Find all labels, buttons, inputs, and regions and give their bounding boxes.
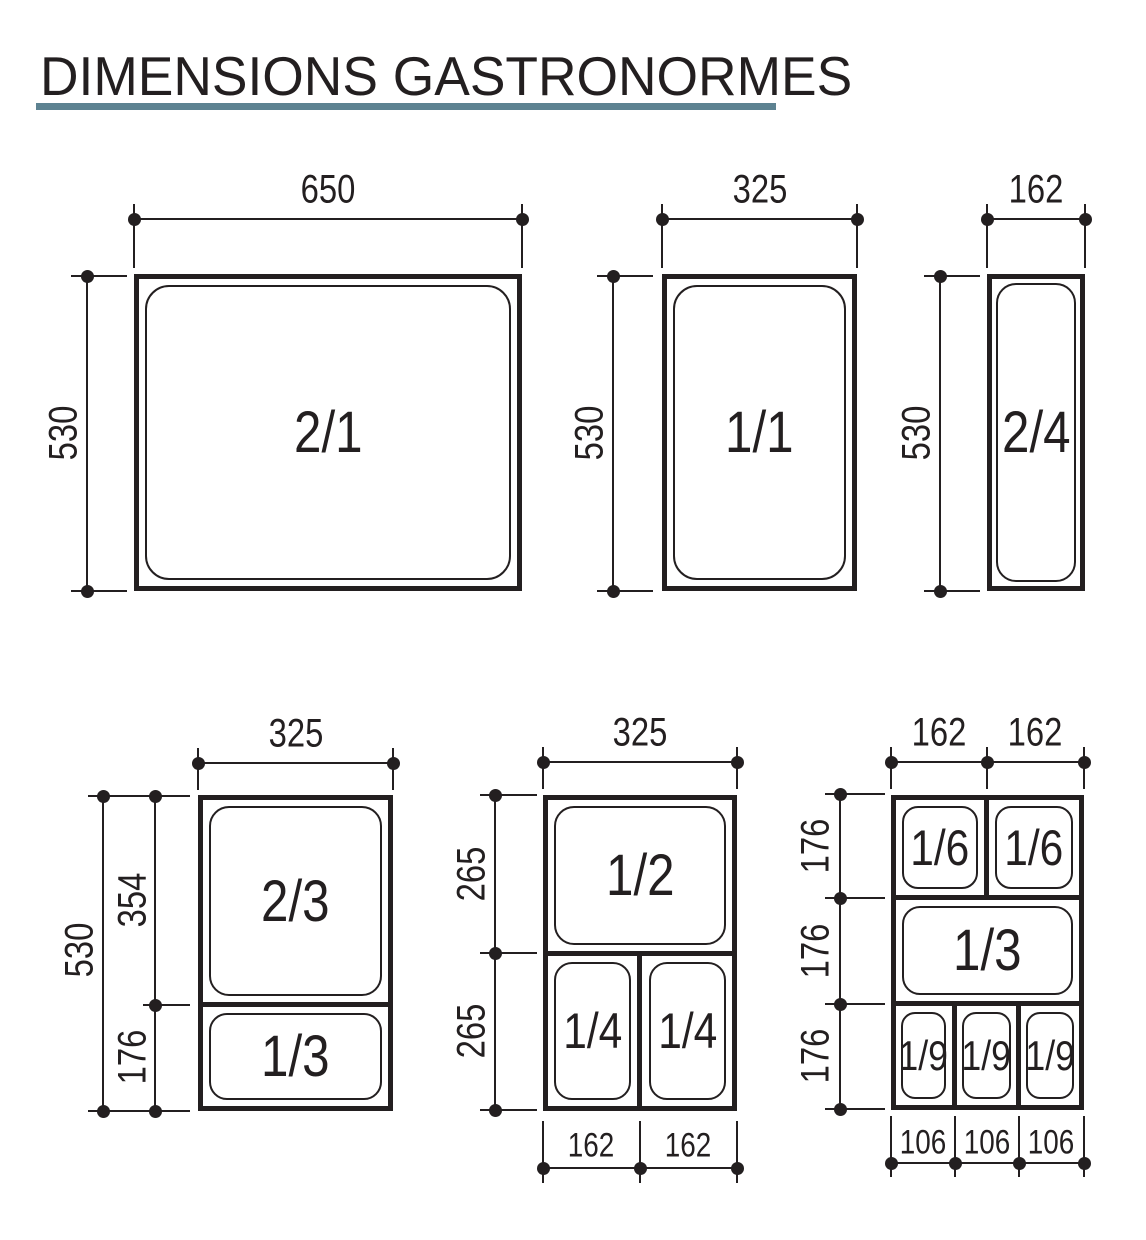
pan-label: 1/9 [899, 1032, 949, 1080]
pan-inset: 1/3 [209, 1013, 382, 1100]
dim-label: 325 [733, 168, 788, 213]
dim-label: 162 [568, 1127, 615, 1166]
dim-label: 530 [58, 923, 103, 978]
dim-label: 265 [450, 1004, 495, 1059]
dim-dot [834, 998, 847, 1011]
dim-dot [516, 213, 529, 226]
extension-line [71, 590, 127, 592]
dim-dot [934, 270, 947, 283]
dim-dot [851, 213, 864, 226]
pan-label: 1/4 [658, 1002, 717, 1060]
dim-dot [489, 947, 502, 960]
dim-line [543, 761, 737, 763]
dim-dot [537, 756, 550, 769]
dim-dot [1078, 1157, 1091, 1170]
dim-line [987, 218, 1085, 220]
pan-inset: 1/9 [1026, 1012, 1074, 1099]
dim-dot [834, 788, 847, 801]
dim-dot [934, 585, 947, 598]
dim-dot [387, 757, 400, 770]
divider-wall [984, 800, 989, 895]
pan-label: 2/4 [1002, 399, 1071, 466]
pan-inset: 1/9 [901, 1012, 946, 1099]
dim-label: 530 [895, 406, 940, 461]
dim-label: 176 [794, 819, 839, 874]
pan-inset: 2/3 [209, 806, 382, 996]
divider-wall [952, 1006, 957, 1105]
pan-label: 1/1 [725, 399, 794, 466]
divider-wall [1016, 1006, 1021, 1105]
divider-wall [203, 1002, 388, 1007]
dim-dot [1078, 756, 1091, 769]
dim-dot [634, 1162, 647, 1175]
dim-dot [537, 1162, 550, 1175]
dim-label: 650 [301, 168, 356, 213]
pan-inset: 1/3 [902, 906, 1073, 995]
dim-dot [607, 270, 620, 283]
dim-dot [981, 213, 994, 226]
pan-label: 1/6 [910, 819, 969, 877]
pan-label: 1/2 [606, 842, 675, 909]
dim-dot [97, 790, 110, 803]
dim-dot [885, 1157, 898, 1170]
pan-label: 1/9 [1025, 1032, 1075, 1080]
dim-label: 325 [269, 712, 324, 757]
dim-line [134, 218, 522, 220]
dim-label: 162 [665, 1127, 712, 1166]
dim-label: 106 [964, 1124, 1011, 1163]
pan-inset: 1/2 [554, 806, 726, 945]
dim-label: 325 [613, 711, 668, 756]
dim-dot [656, 213, 669, 226]
dim-dot [949, 1157, 962, 1170]
extension-line [71, 275, 127, 277]
dim-line [662, 218, 857, 220]
pan-inset: 1/6 [902, 806, 978, 889]
divider-wall [896, 1001, 1079, 1006]
dim-dot [834, 892, 847, 905]
pan-label: 1/9 [962, 1032, 1012, 1080]
pan-label: 2/1 [294, 399, 363, 466]
dim-dot [981, 756, 994, 769]
dim-dot [885, 756, 898, 769]
dim-dot [1079, 213, 1092, 226]
dim-dot [149, 999, 162, 1012]
extension-line [597, 275, 653, 277]
dim-label: 106 [1028, 1124, 1075, 1163]
gastronorm-dimensions-diagram: DIMENSIONS GASTRONORMES 2/1 650 530 1/1 [0, 0, 1146, 1240]
dim-dot [81, 270, 94, 283]
divider-wall [896, 895, 1079, 900]
dim-dot [128, 213, 141, 226]
pan-label: 1/3 [261, 1023, 330, 1090]
pan-inset: 1/4 [649, 962, 726, 1100]
dim-dot [834, 1103, 847, 1116]
dim-line [839, 794, 841, 1109]
dim-dot [731, 1162, 744, 1175]
dim-dot [192, 757, 205, 770]
dim-label: 530 [568, 406, 613, 461]
pan-inset: 2/4 [996, 283, 1076, 582]
dim-label: 176 [111, 1030, 156, 1085]
divider-wall [637, 956, 642, 1106]
pan-inset: 2/1 [145, 285, 511, 580]
dim-dot [731, 756, 744, 769]
dim-dot [607, 585, 620, 598]
pan-inset: 1/9 [962, 1012, 1011, 1099]
dim-label: 176 [794, 1029, 839, 1084]
dim-label: 162 [1008, 711, 1063, 756]
dim-label: 106 [900, 1124, 947, 1163]
pan-label: 1/6 [1004, 819, 1063, 877]
title-underline [36, 103, 776, 110]
pan-inset: 1/4 [554, 962, 631, 1100]
dim-dot [489, 1104, 502, 1117]
dim-label: 162 [1009, 168, 1064, 213]
dim-dot [489, 789, 502, 802]
dim-dot [149, 790, 162, 803]
pan-label: 1/4 [563, 1002, 622, 1060]
dim-label: 530 [42, 406, 87, 461]
dim-dot [149, 1105, 162, 1118]
dim-label: 354 [111, 873, 156, 928]
dim-dot [1013, 1157, 1026, 1170]
dim-label: 162 [912, 711, 967, 756]
extension-line [597, 590, 653, 592]
dim-label: 176 [794, 924, 839, 979]
dim-label: 265 [450, 847, 495, 902]
pan-label: 1/3 [953, 917, 1022, 984]
dim-line [198, 762, 393, 764]
dim-dot [81, 585, 94, 598]
pan-inset: 1/1 [673, 285, 846, 580]
dim-dot [97, 1105, 110, 1118]
page-title: DIMENSIONS GASTRONORMES [40, 44, 852, 108]
pan-label: 2/3 [261, 868, 330, 935]
extension-line [924, 275, 980, 277]
extension-line [924, 590, 980, 592]
pan-inset: 1/6 [995, 806, 1073, 889]
